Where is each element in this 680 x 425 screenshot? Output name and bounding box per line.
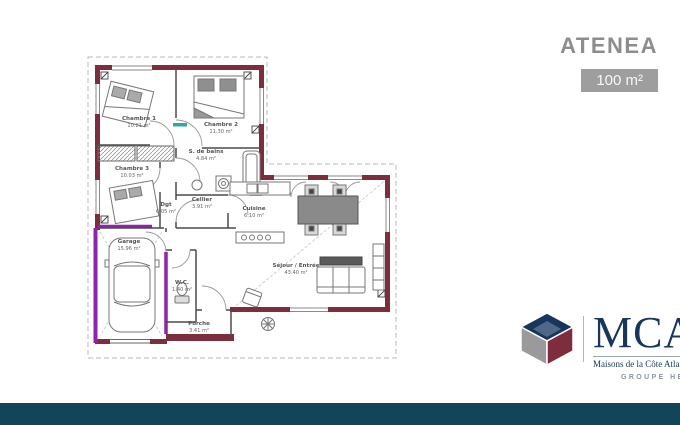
room-label-salle-de-bains: S. de bains 4.84 m² <box>189 149 225 162</box>
page: Chambre 1 10.21 m² Chambre 2 11.30 m² Ch… <box>0 0 680 425</box>
svg-text:Cellier: Cellier <box>192 197 212 203</box>
group-label: GROUPE HEXAŌM <box>621 374 680 381</box>
svg-text:Porche: Porche <box>188 321 210 327</box>
logo-divider <box>583 316 584 362</box>
garage-door <box>110 340 150 344</box>
room-label-garage: Garage 15.96 m² <box>117 239 140 252</box>
page-title: ATENEA <box>560 33 658 59</box>
surface-badge: 100 m² <box>581 69 658 92</box>
room-label-chambre-1: Chambre 1 10.21 m² <box>122 116 156 129</box>
svg-text:6.10 m²: 6.10 m² <box>244 213 264 219</box>
mca-logotype: MCA <box>593 312 680 354</box>
dining-table <box>298 185 358 235</box>
svg-text:3.91 m²: 3.91 m² <box>192 204 212 210</box>
surface-value: 100 m² <box>596 72 643 89</box>
svg-text:43.40 m²: 43.40 m² <box>284 270 307 276</box>
svg-text:Chambre 2: Chambre 2 <box>204 122 238 128</box>
brand-text: MCA Maisons de la Côte Atlantique GROUPE… <box>593 312 680 381</box>
mca-subtitle: Maisons de la Côte Atlantique <box>593 356 680 369</box>
svg-text:11.30 m²: 11.30 m² <box>209 129 232 135</box>
svg-text:6.05 m²: 6.05 m² <box>156 209 176 215</box>
room-label-chambre-3: Chambre 3 10.03 m² <box>115 166 149 179</box>
svg-text:W.C.: W.C. <box>175 280 189 286</box>
room-label-wc: W.C. 1.40 m² <box>172 280 192 293</box>
svg-text:1.40 m²: 1.40 m² <box>172 287 192 293</box>
storage-cabinet <box>373 244 384 290</box>
mca-cube-icon <box>519 312 575 366</box>
washbasin <box>192 180 202 190</box>
room-label-cuisine: Cuisine 6.10 m² <box>242 206 265 219</box>
kitchen-hob <box>236 232 284 243</box>
svg-text:Séjour / Entrée: Séjour / Entrée <box>272 262 319 269</box>
svg-text:Cuisine: Cuisine <box>242 206 265 212</box>
svg-text:10.21 m²: 10.21 m² <box>127 123 150 129</box>
room-label-porche: Porche 3.41 m² <box>188 321 210 334</box>
washing-machine <box>216 176 231 191</box>
svg-text:15.96 m²: 15.96 m² <box>117 246 140 252</box>
car <box>105 238 159 332</box>
porch-wall <box>166 334 234 341</box>
brand-block: MCA Maisons de la Côte Atlantique GROUPE… <box>519 312 680 381</box>
wardrobe <box>98 146 174 161</box>
armchair <box>242 288 262 308</box>
threshold-marker <box>173 123 187 127</box>
svg-text:S. de bains: S. de bains <box>189 149 225 155</box>
svg-text:Dgt: Dgt <box>160 202 172 208</box>
bed-chambre-3 <box>109 180 159 223</box>
svg-text:Garage: Garage <box>118 239 141 245</box>
plant <box>262 318 275 331</box>
svg-text:10.03 m²: 10.03 m² <box>120 173 143 179</box>
svg-text:3.41 m²: 3.41 m² <box>189 328 209 334</box>
svg-text:Chambre 1: Chambre 1 <box>122 116 156 122</box>
header: ATENEA 100 m² <box>560 33 658 92</box>
bed-chambre-2 <box>194 76 244 118</box>
tv-console <box>320 257 362 265</box>
room-label-cellier: Cellier 3.91 m² <box>192 197 212 210</box>
room-label-degagement: Dgt 6.05 m² <box>156 202 176 215</box>
sofa <box>317 267 365 293</box>
svg-text:Chambre 3: Chambre 3 <box>115 166 149 172</box>
room-label-chambre-2: Chambre 2 11.30 m² <box>204 122 238 135</box>
footer-bar <box>0 403 680 425</box>
kitchen-counter <box>230 182 290 195</box>
svg-text:4.84 m²: 4.84 m² <box>196 156 216 162</box>
